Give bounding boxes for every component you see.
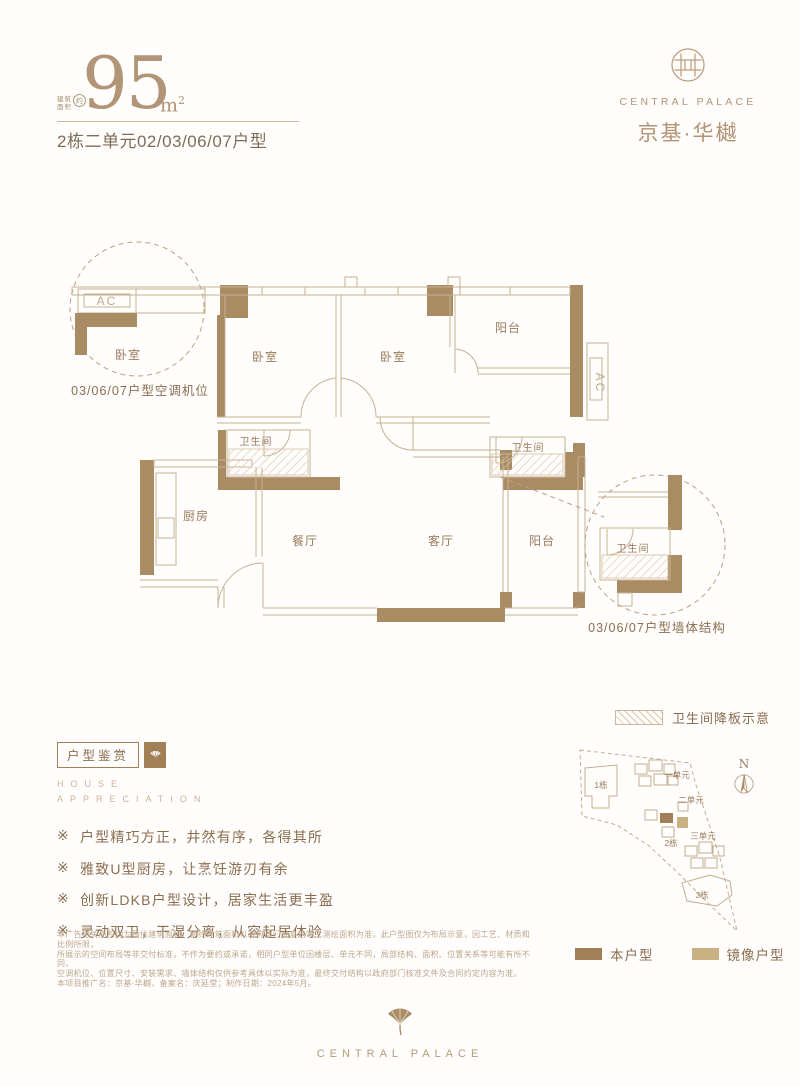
brand-name-cn: 京基·华樾 (600, 117, 776, 147)
this-unit-label: 本户型 (610, 944, 654, 964)
site-map: 1栋 一单元 二单元 2栋 三单元 3栋 N (565, 738, 785, 938)
unit-3-label: 三单元 (690, 831, 716, 841)
sunken-slab-label: 卫生间降板示意 (672, 708, 770, 727)
room-label-kitchen: 厨房 (183, 508, 209, 523)
mirror-unit-label: 镜像户型 (727, 944, 785, 964)
appreciation-section: 户型鉴赏 HOUSE APPRECIATION ※ 户型精巧方正，井然有序，各得… (57, 742, 437, 953)
bullet-item: ※ 户型精巧方正，井然有序，各得其所 (57, 827, 437, 847)
footer-logo: CENTRAL PALACE (0, 1002, 800, 1060)
disclaimer: 本广告相关面积均为预估建筑面积，最终建筑面积以政府部门批复的竣工测绘面积为准，此… (57, 930, 535, 989)
brand-logo: CENTRAL PALACE 京基·华樾 (600, 46, 776, 147)
room-label-bath-left: 卫生间 (240, 435, 273, 448)
room-label-living: 客厅 (428, 533, 454, 548)
room-label-bath-right: 卫生间 (512, 441, 545, 454)
disclaimer-line: 本广告相关面积均为预估建筑面积，最终建筑面积以政府部门批复的竣工测绘面积为准，此… (57, 930, 535, 950)
area-prefix-line1: 建筑 (57, 96, 72, 104)
ac-unit-label: AC (593, 373, 607, 394)
room-label-balcony-top: 阳台 (495, 320, 521, 335)
unit-legend: 本户型 镜像户型 (575, 944, 785, 964)
appreciation-header: 户型鉴赏 (57, 742, 437, 768)
bullet-marker: ※ (57, 859, 70, 879)
callout-wall-caption: 03/06/07户型墙体结构 (588, 620, 726, 635)
building-1-label: 1栋 (594, 780, 608, 790)
callout-ac-position: AC 卧室 03/06/07户型空调机位 (70, 242, 209, 398)
area-prefix: 建筑 面积 (57, 96, 72, 112)
sunken-slab-legend: 卫生间降板示意 (615, 708, 770, 727)
room-label-bedroom-left: 卧室 (252, 349, 278, 364)
callout-bath-label: 卫生间 (617, 542, 650, 555)
disclaimer-line: 本项目推广名：京基·华樾，备案名：庆延堂；制作日期：2024年5月。 (57, 979, 535, 989)
callout-wall-structure: 卫生间 03/06/07户型墙体结构 (500, 475, 726, 635)
sunken-slab-swatch (615, 710, 663, 725)
mirror-unit-swatch (692, 948, 719, 960)
room-label-dining: 餐厅 (292, 533, 318, 548)
sunken-slab-right (492, 454, 563, 475)
bullet-item: ※ 雅致U型厨房，让烹饪游刃有余 (57, 859, 437, 879)
north-compass: N (735, 757, 753, 793)
unit-2-label: 二单元 (678, 795, 704, 805)
bullet-text: 雅致U型厨房，让烹饪游刃有余 (80, 859, 289, 879)
brand-emblem-icon (669, 46, 707, 84)
unit-cluster-lower (685, 842, 724, 868)
building-2-label: 2栋 (664, 838, 678, 848)
area-unit: m2 (160, 94, 185, 116)
bullet-text: 创新LDKB户型设计，居家生活更丰盈 (80, 890, 334, 910)
bullet-marker: ※ (57, 890, 70, 910)
appreciation-title: 户型鉴赏 (57, 742, 139, 768)
room-label-bedroom-mid: 卧室 (380, 349, 406, 364)
building-3-label: 3栋 (695, 890, 709, 900)
disclaimer-line: 所展示的空间布局等非交付标准，不作为要约或承诺，相同户型单位因楼层、单元不同，局… (57, 950, 535, 970)
callout-ac-label: AC (97, 294, 118, 308)
room-label-balcony-bottom: 阳台 (529, 533, 555, 548)
north-label: N (739, 757, 750, 771)
callout-bedroom-label: 卧室 (115, 347, 141, 362)
header-divider (57, 121, 299, 122)
unit-cluster-mid (645, 802, 688, 837)
ginkgo-leaf-icon (149, 748, 162, 763)
appreciation-en-line2: APPRECIATION (57, 792, 437, 807)
footer-leaf-icon (385, 1002, 415, 1036)
leaf-badge (144, 742, 166, 768)
floor-plan: 卧室 卧室 阳台 卫生间 卫生间 厨房 餐厅 客厅 阳台 AC AC 卧室 03… (0, 225, 800, 685)
appreciation-bullets: ※ 户型精巧方正，井然有序，各得其所 ※ 雅致U型厨房，让烹饪游刃有余 ※ 创新… (57, 827, 437, 942)
bullet-marker: ※ (57, 827, 70, 847)
bullet-text: 户型精巧方正，井然有序，各得其所 (80, 827, 323, 847)
brand-name-en: CENTRAL PALACE (600, 96, 776, 108)
disclaimer-line: 空调机位、位置尺寸、安装需求、墙体结构仅供参考具体以实际为准，最终交付结构以政府… (57, 969, 535, 979)
area-prefix-line2: 面积 (57, 104, 72, 112)
bullet-item: ※ 创新LDKB户型设计，居家生活更丰盈 (57, 890, 437, 910)
appreciation-en-line1: HOUSE (57, 777, 437, 792)
unit-subtitle: 2栋二单元02/03/06/07户型 (57, 127, 267, 152)
callout-ac-caption: 03/06/07户型空调机位 (71, 383, 209, 398)
sunken-slab-left (229, 449, 308, 475)
room-labels: 卧室 卧室 阳台 卫生间 卫生间 厨房 餐厅 客厅 阳台 AC (183, 320, 607, 548)
this-unit-swatch (575, 948, 602, 960)
footer-brand-en: CENTRAL PALACE (0, 1048, 800, 1060)
mirror-unit-marker (677, 817, 688, 828)
unit-1-label: 一单元 (664, 770, 690, 780)
appreciation-en: HOUSE APPRECIATION (57, 777, 437, 807)
floorplan-flyer-page: 建筑 面积 约 95 m2 2栋二单元02/03/06/07户型 CENTRAL… (0, 0, 800, 1086)
this-unit-marker (660, 813, 673, 823)
area-number: 95 (82, 50, 170, 116)
